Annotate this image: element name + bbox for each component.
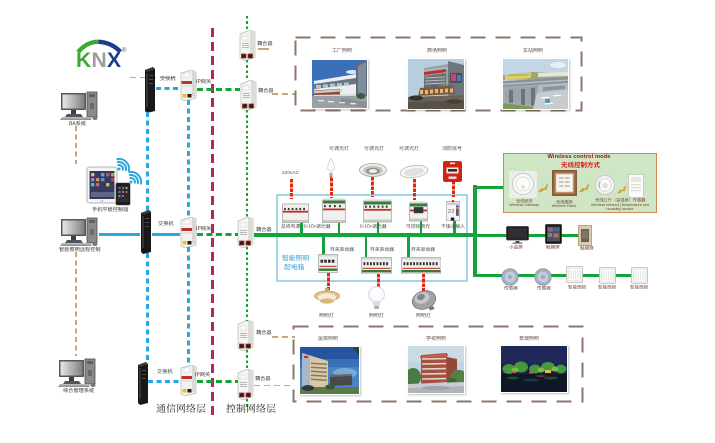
svg-text:23: 23 [448, 209, 454, 215]
svg-text:N: N [92, 49, 107, 70]
svg-text:K: K [76, 49, 91, 70]
svg-text:X: X [107, 49, 121, 70]
svg-text:®: ® [122, 47, 127, 54]
